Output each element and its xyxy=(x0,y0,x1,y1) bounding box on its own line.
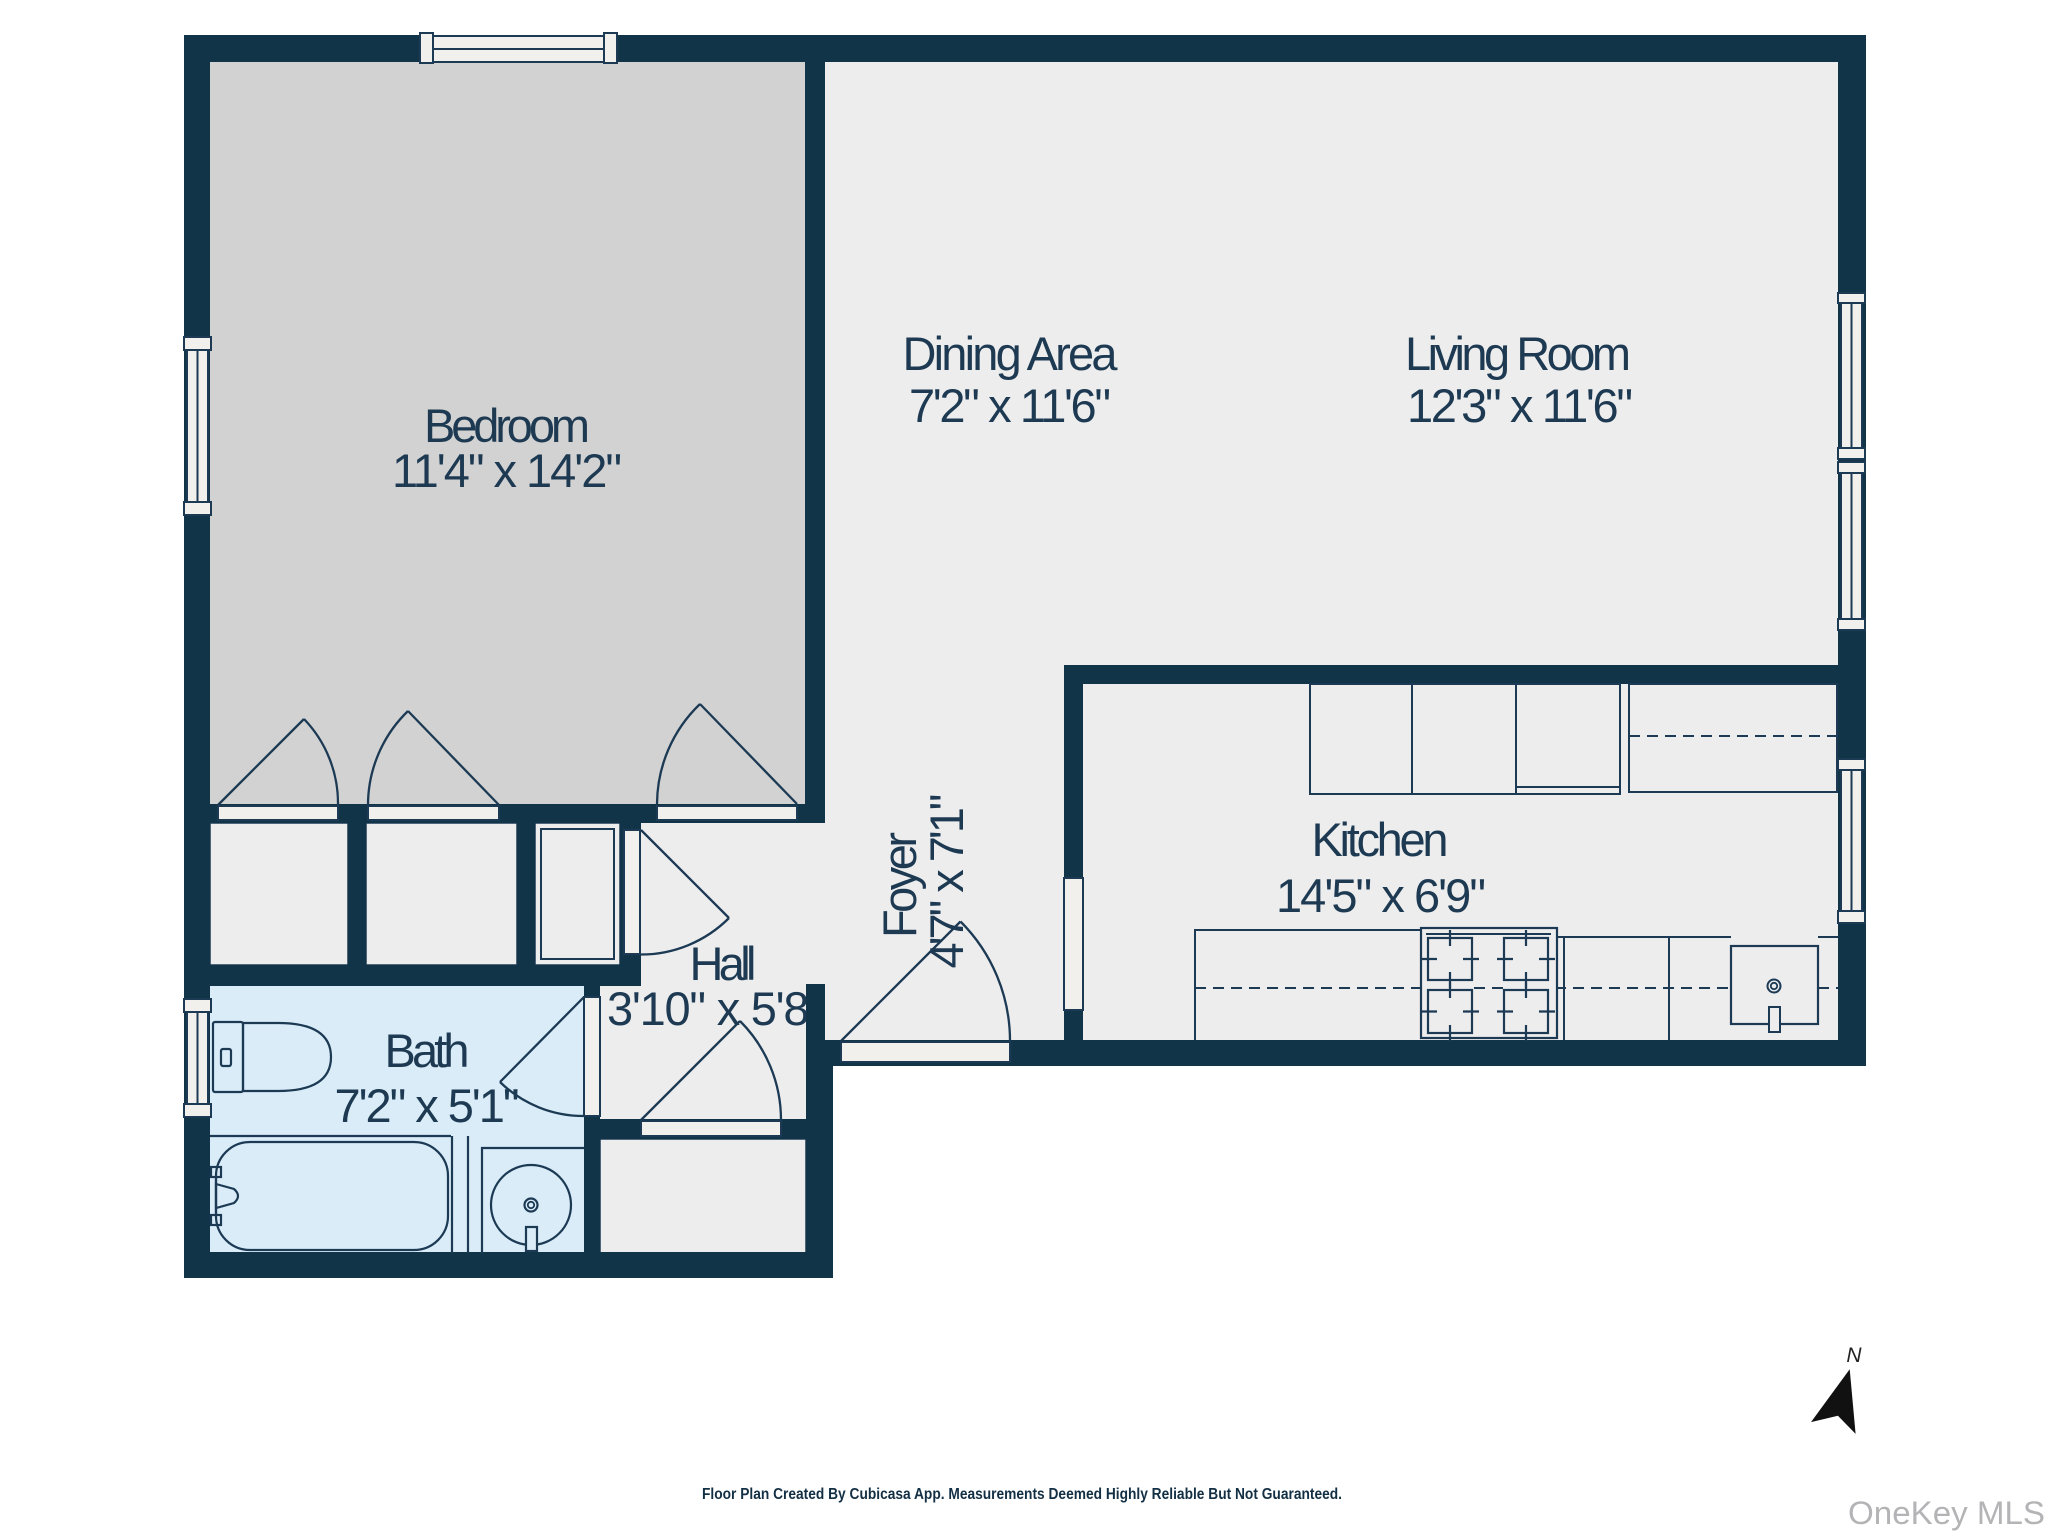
svg-text:Dining Area: Dining Area xyxy=(903,327,1119,380)
svg-text:7'2" x 11'6": 7'2" x 11'6" xyxy=(909,379,1111,432)
svg-text:12'3" x 11'6": 12'3" x 11'6" xyxy=(1407,379,1633,432)
svg-text:7'2" x 5'1": 7'2" x 5'1" xyxy=(335,1079,520,1132)
svg-text:Floor Plan Created By Cubicasa: Floor Plan Created By Cubicasa App. Meas… xyxy=(702,1486,1342,1503)
svg-text:Foyer: Foyer xyxy=(873,832,926,938)
svg-text:14'5" x 6'9": 14'5" x 6'9" xyxy=(1276,869,1486,922)
svg-text:11'4" x 14'2": 11'4" x 14'2" xyxy=(392,444,622,497)
svg-text:N: N xyxy=(1846,1344,1862,1367)
svg-text:4'7" x 7'1": 4'7" x 7'1" xyxy=(920,794,973,969)
svg-text:3'10" x 5'8": 3'10" x 5'8" xyxy=(607,982,825,1035)
svg-text:Living Room: Living Room xyxy=(1405,327,1631,380)
svg-text:OneKey MLS: OneKey MLS xyxy=(1848,1495,2045,1531)
svg-text:Bath: Bath xyxy=(385,1024,470,1077)
svg-text:Kitchen: Kitchen xyxy=(1312,813,1449,866)
